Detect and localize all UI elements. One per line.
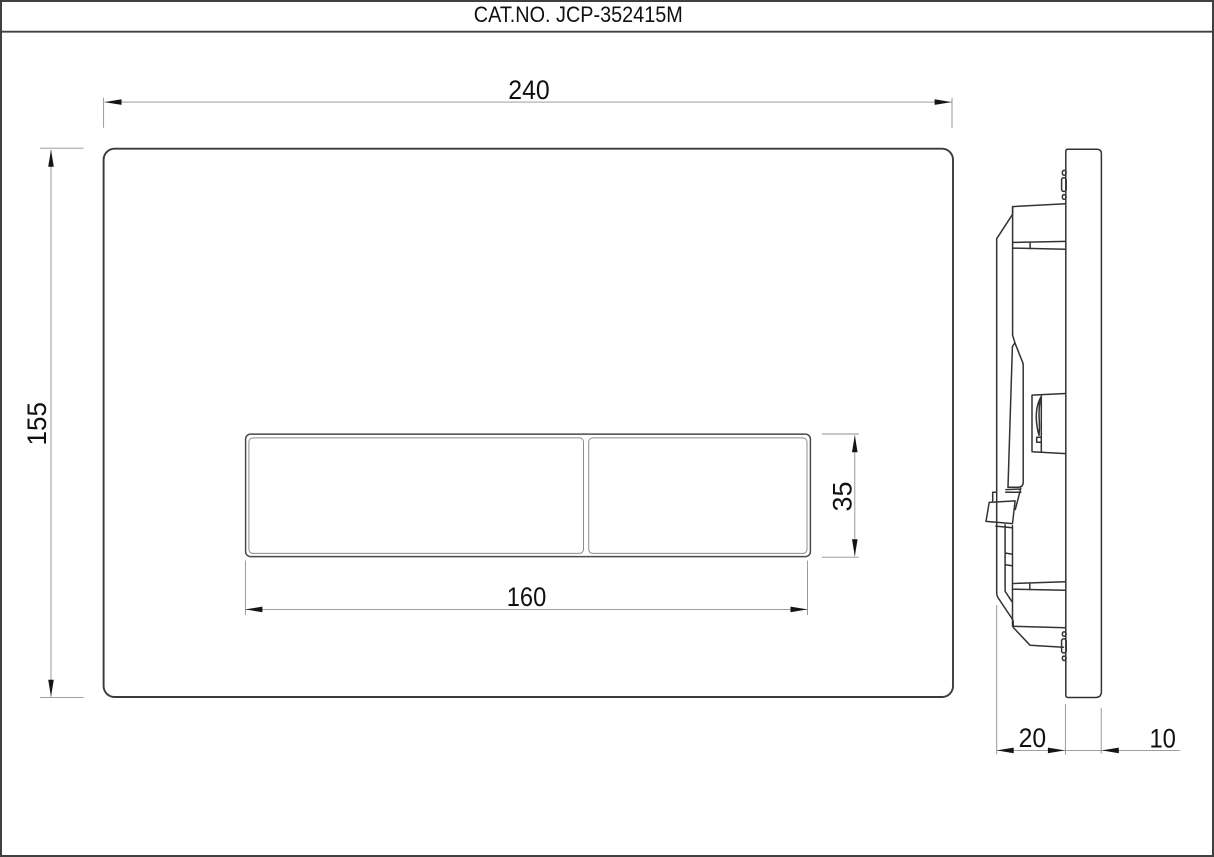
svg-text:20: 20 — [1019, 723, 1047, 753]
svg-text:10: 10 — [1149, 723, 1176, 753]
svg-text:160: 160 — [507, 582, 547, 612]
svg-text:35: 35 — [827, 482, 857, 512]
svg-text:155: 155 — [22, 402, 52, 446]
svg-text:CAT.NO. JCP-352415M: CAT.NO. JCP-352415M — [474, 2, 683, 27]
svg-text:240: 240 — [508, 75, 550, 105]
